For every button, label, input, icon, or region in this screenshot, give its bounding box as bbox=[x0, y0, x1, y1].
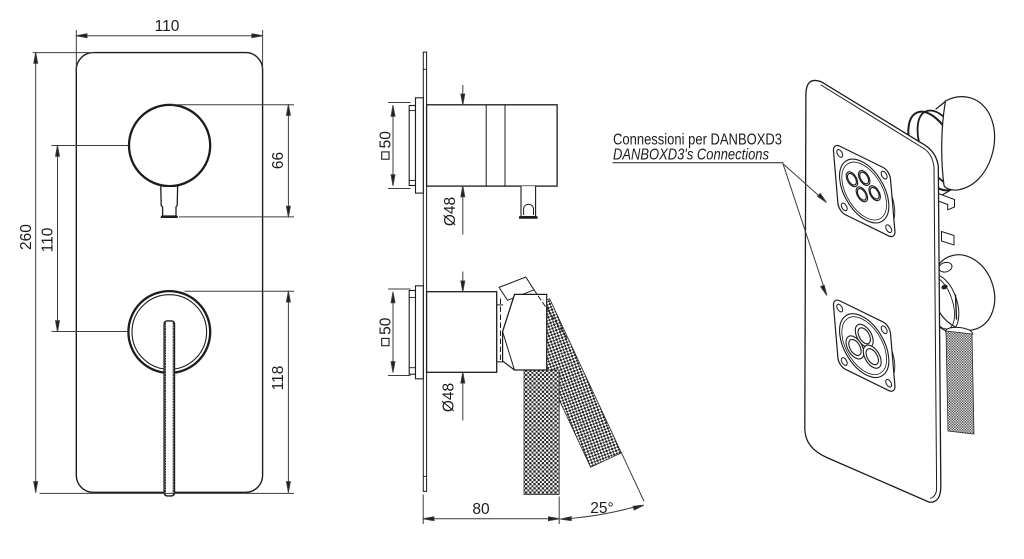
svg-text:80: 80 bbox=[472, 501, 490, 518]
svg-text:Ø48: Ø48 bbox=[441, 383, 458, 412]
svg-text:DANBOXD3's Connections: DANBOXD3's Connections bbox=[613, 146, 769, 163]
svg-text:25°: 25° bbox=[590, 500, 613, 517]
svg-text:Ø48: Ø48 bbox=[442, 197, 459, 226]
svg-text:260: 260 bbox=[18, 224, 35, 250]
svg-text:66: 66 bbox=[270, 152, 287, 169]
svg-text:50: 50 bbox=[378, 317, 395, 335]
svg-text:118: 118 bbox=[270, 366, 287, 391]
svg-text:110: 110 bbox=[40, 227, 57, 252]
svg-text:50: 50 bbox=[378, 131, 395, 149]
svg-text:110: 110 bbox=[155, 18, 180, 35]
